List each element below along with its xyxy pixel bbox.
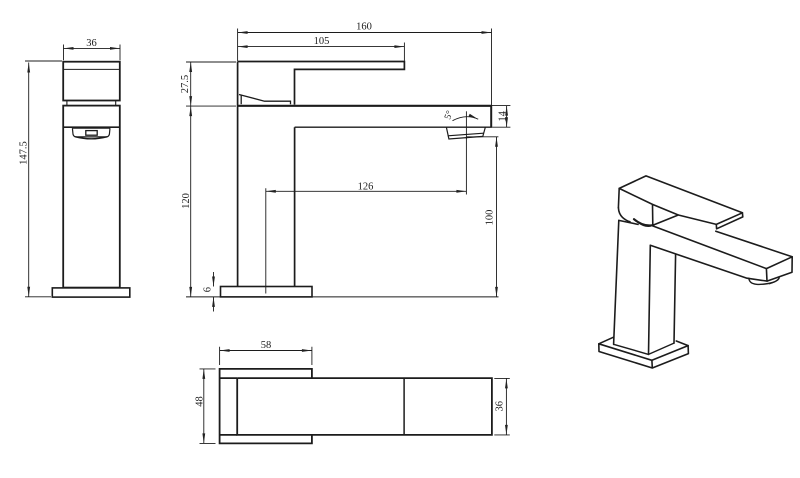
svg-text:36: 36 bbox=[86, 38, 97, 49]
svg-text:48: 48 bbox=[195, 396, 206, 407]
svg-text:14: 14 bbox=[498, 110, 509, 121]
svg-text:36: 36 bbox=[494, 401, 505, 412]
svg-text:6: 6 bbox=[202, 287, 213, 292]
svg-text:5°: 5° bbox=[442, 109, 455, 121]
svg-text:147.5: 147.5 bbox=[19, 141, 30, 165]
svg-text:126: 126 bbox=[358, 182, 374, 193]
svg-text:160: 160 bbox=[356, 22, 372, 33]
svg-text:105: 105 bbox=[314, 36, 330, 47]
svg-text:58: 58 bbox=[261, 340, 272, 351]
svg-text:100: 100 bbox=[485, 210, 496, 226]
svg-text:27.5: 27.5 bbox=[180, 75, 191, 93]
svg-text:120: 120 bbox=[181, 193, 192, 209]
